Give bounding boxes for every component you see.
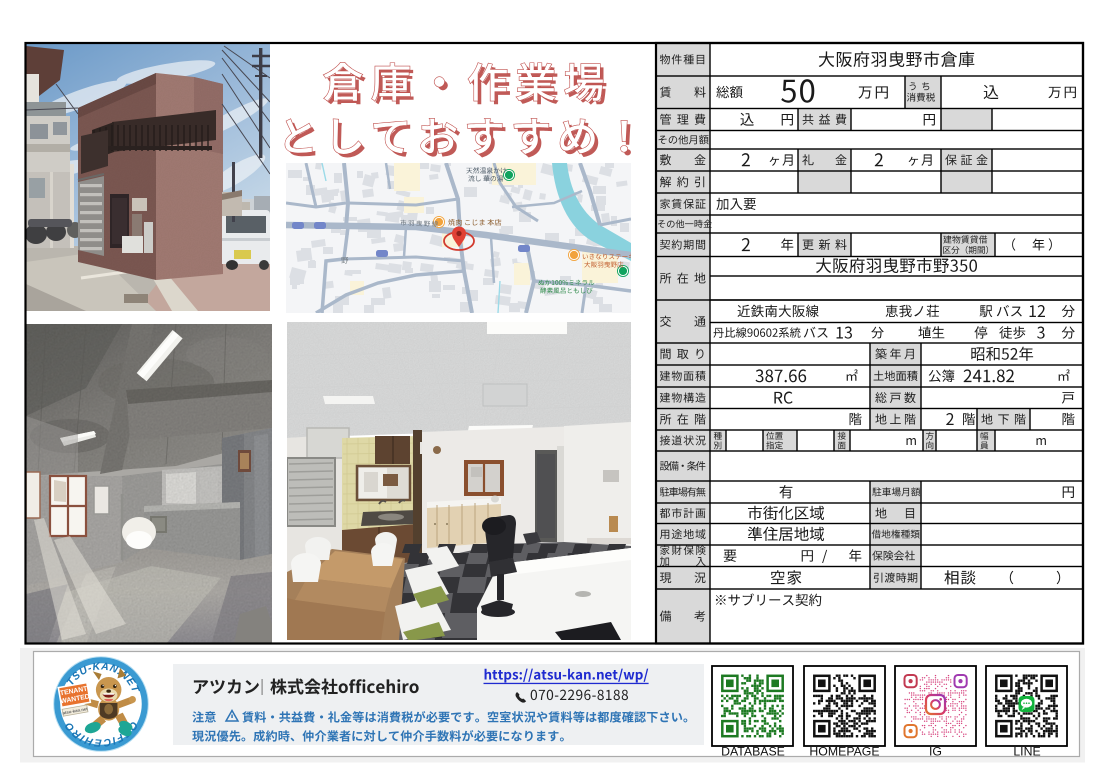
svg-text:LINE: LINE (1013, 745, 1040, 759)
svg-text:HOMEPAGE: HOMEPAGE (809, 745, 879, 759)
svg-text:DATABASE: DATABASE (721, 745, 785, 759)
svg-text:IG: IG (929, 745, 942, 759)
